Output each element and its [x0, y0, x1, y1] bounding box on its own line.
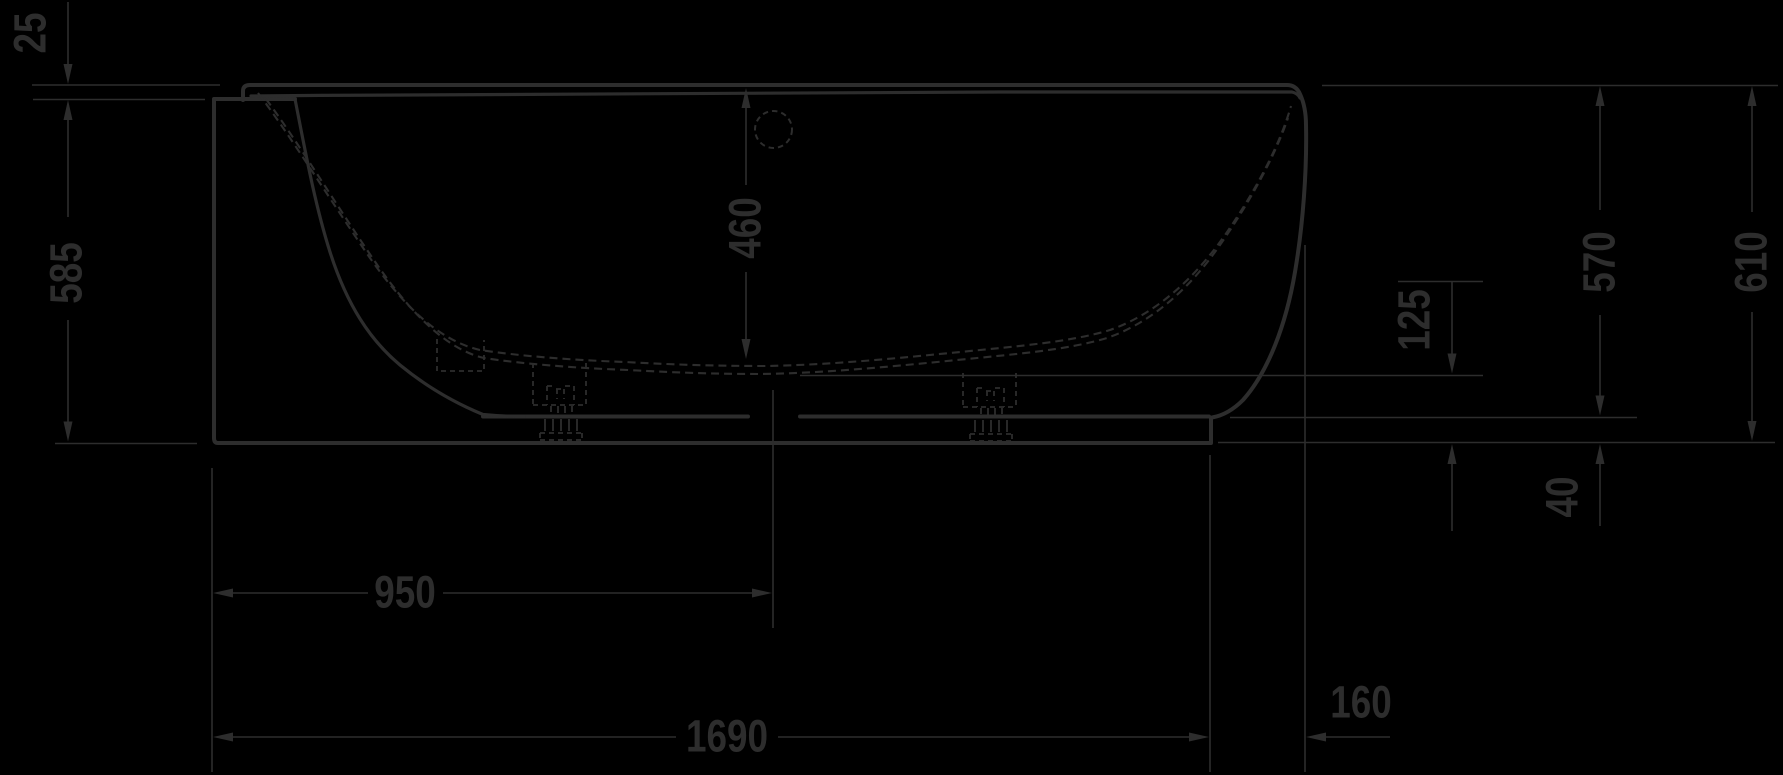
dim-label-610: 610 — [1726, 231, 1776, 293]
arrowhead-down — [1448, 354, 1457, 374]
arrowhead-left — [213, 733, 233, 742]
extension-lines — [32, 85, 1778, 772]
arrowhead-up — [1596, 444, 1605, 464]
arrowhead-up — [1596, 86, 1605, 106]
dim-label-570: 570 — [1574, 231, 1624, 293]
arrowhead-right — [752, 589, 772, 598]
dim-label-25: 25 — [5, 12, 55, 53]
arrowhead-down — [64, 64, 73, 84]
dim-label-460: 460 — [720, 197, 770, 259]
arrowhead-right — [1189, 733, 1209, 742]
dimension-570: 570 — [1574, 86, 1624, 416]
arrowhead-left — [1306, 733, 1326, 742]
bathtub-hidden-geometry — [258, 93, 1291, 441]
dimension-160: 160 — [1306, 677, 1392, 742]
dim-label-1690: 1690 — [686, 711, 768, 761]
arrowhead-left — [213, 589, 233, 598]
arrowhead-down — [1748, 421, 1757, 441]
dimension-950: 950 — [213, 567, 772, 617]
dimension-585: 585 — [41, 100, 91, 442]
arrowhead-up — [1448, 444, 1457, 464]
tub-rim-inner-edge — [251, 92, 1300, 98]
dim-label-585: 585 — [41, 242, 91, 304]
dimension-610: 610 — [1726, 86, 1776, 441]
dim-label-40: 40 — [1537, 476, 1587, 517]
arrowhead-down — [742, 339, 751, 359]
overflow-hole-dashed-circle — [755, 111, 792, 148]
dimension-40: 40 — [1537, 444, 1605, 526]
dim-label-160: 160 — [1330, 677, 1392, 727]
dim-label-950: 950 — [374, 567, 436, 617]
dimension-460: 460 — [720, 88, 770, 359]
arrowhead-down — [64, 422, 73, 442]
adjustable-foot-left — [533, 363, 586, 440]
inner-bowl-lower-dashed — [266, 99, 1288, 374]
adjustable-foot-right — [963, 373, 1016, 441]
bathtub-dimension-drawing: 25 585 460 570 610 125 40 — [0, 0, 1783, 775]
dimension-1690: 1690 — [213, 711, 1209, 761]
dimension-25: 25 — [5, 2, 73, 84]
arrowhead-up — [1748, 86, 1757, 106]
arrowhead-up — [64, 100, 73, 120]
dim-label-125: 125 — [1389, 289, 1439, 351]
technical-drawing-canvas: 25 585 460 570 610 125 40 — [0, 0, 1783, 775]
arrowhead-down — [1596, 396, 1605, 416]
tub-inner-wall-left — [295, 99, 524, 417]
dimension-125: 125 — [1389, 282, 1457, 531]
arrowhead-up — [742, 88, 751, 108]
